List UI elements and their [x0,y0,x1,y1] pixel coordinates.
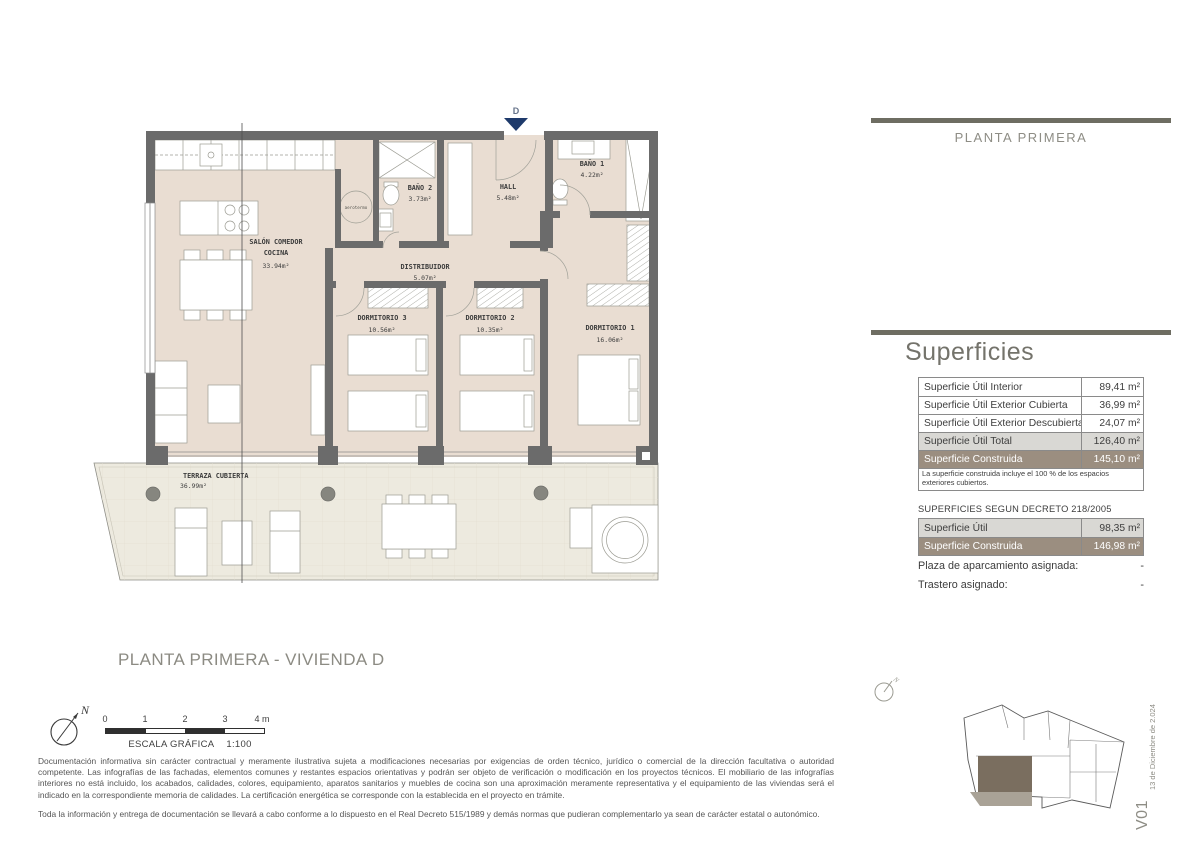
table-row-construida: Superficie Construida146,98 m² [919,537,1143,555]
entrance-direction-icon [504,118,528,131]
row-label: Superficie Construida [919,451,1081,468]
plan-title: PLANTA PRIMERA - VIVIENDA D [118,650,385,670]
row-value: 145,10 m² [1081,451,1143,468]
floor-plan: aerotermo [80,103,680,603]
table-row: Superficie Útil98,35 m² [919,519,1143,537]
areas-table: Superficie Útil Interior89,41 m² Superfi… [918,377,1144,469]
dining-table [180,250,252,320]
table-row-construida: Superficie Construida145,10 m² [919,450,1143,468]
north-compass-icon: N [40,700,100,752]
room-area: 10.56m² [369,326,396,334]
tv-unit [311,365,325,435]
room-label: BAÑO 1 [580,159,605,168]
table-row: Superficie Útil Exterior Cubierta36,99 m… [919,396,1143,414]
scale-label: ESCALA GRÁFICA [128,739,214,750]
row-value: 146,98 m² [1081,538,1143,555]
room-label: TERRAZA CUBIERTA [183,472,248,480]
column [534,486,548,500]
room-area: 36.99m² [180,482,207,490]
hall-closet [448,143,472,235]
room-label: DORMITORIO 2 [465,314,514,322]
superficies-title: Superficies [905,338,1034,367]
row-value: 36,99 m² [1081,397,1143,414]
areas-table-note: La superficie construida incluye el 100 … [918,469,1144,491]
north-letter: N [80,703,90,717]
room-label: DORMITORIO 3 [357,314,406,322]
room-area: 5.07m² [413,274,436,282]
room-area: 4.22m² [580,171,603,179]
room-label: BAÑO 2 [408,183,433,192]
entrance-marker: D [504,106,528,131]
aerotermo-label: aerotermo [345,205,368,210]
kitchen-counter [155,140,335,170]
scale-tick: 1 [142,714,147,724]
bedroom1-bed [578,355,640,425]
assignment-value: - [1140,560,1144,572]
room-label: COCINA [264,249,289,257]
row-label: Superficie Útil Exterior Descubierta [919,415,1081,432]
column [146,487,160,501]
scale-tick: 0 [102,714,107,724]
coffee-table [208,385,240,423]
room-area: 5.48m² [496,194,519,202]
version-label: V01 [1134,800,1152,830]
highlighted-terrace [970,792,1032,806]
row-value: 89,41 m² [1081,378,1143,396]
room-label: DISTRIBUIDOR [400,263,450,271]
entrance-letter: D [513,106,520,116]
room-area: 10.35m² [477,326,504,334]
scale-tick: 3 [222,714,227,724]
site-key-plan [950,698,1138,840]
highlighted-unit [978,756,1032,792]
kitchen-island [180,201,258,235]
assignment-label: Trastero asignado: [918,579,1008,591]
storage-assignment: Trastero asignado: - [918,579,1144,591]
scale-tick: 2 [182,714,187,724]
legal-disclaimer-2: Toda la información y entrega de documen… [38,809,834,820]
parking-assignment: Plaza de aparcamiento asignada: - [918,560,1144,572]
room-area: 16.06m² [597,336,624,344]
assignment-label: Plaza de aparcamiento asignada: [918,560,1078,572]
table-row: Superficie Útil Exterior Descubierta24,0… [919,414,1143,432]
north-letter: N [891,675,901,685]
decreto-title: SUPERFICIES SEGUN DECRETO 218/2005 [918,504,1112,514]
header-rule [871,118,1171,123]
legal-disclaimer: Documentación informativa sin carácter c… [38,756,834,801]
section-rule [871,330,1171,335]
version-date: 13 de Diciembre de 2.024 [1148,704,1157,790]
row-value: 98,35 m² [1081,519,1143,537]
table-row: Superficie Útil Interior89,41 m² [919,378,1143,396]
decreto-table: Superficie Útil98,35 m² Superficie Const… [918,518,1144,556]
row-label: Superficie Construida [919,538,1081,555]
row-value: 24,07 m² [1081,415,1143,432]
row-value: 126,40 m² [1081,433,1143,450]
assignment-value: - [1140,579,1144,591]
room-area: 3.73m² [408,195,431,203]
aerotermo-unit: aerotermo [340,191,372,223]
room-label: DORMITORIO 1 [585,324,634,332]
scale-bar [105,728,265,734]
panel-header: PLANTA PRIMERA [871,130,1171,145]
column [321,487,335,501]
table-row-total: Superficie Útil Total126,40 m² [919,432,1143,450]
room-label: HALL [500,183,516,191]
scale-tick: 4 m [254,714,269,724]
row-label: Superficie Útil Total [919,433,1081,450]
room-area: 33.94m² [263,262,290,270]
row-label: Superficie Útil Exterior Cubierta [919,397,1081,414]
row-label: Superficie Útil [919,519,1081,537]
north-compass-icon: N [870,668,904,708]
row-label: Superficie Útil Interior [919,378,1081,396]
room-label: SALÓN COMEDOR [249,237,303,246]
scale-ratio: 1:100 [226,739,251,750]
graphic-scale: 0 1 2 3 4 m ESCALA GRÁFICA 1:100 [95,714,285,754]
